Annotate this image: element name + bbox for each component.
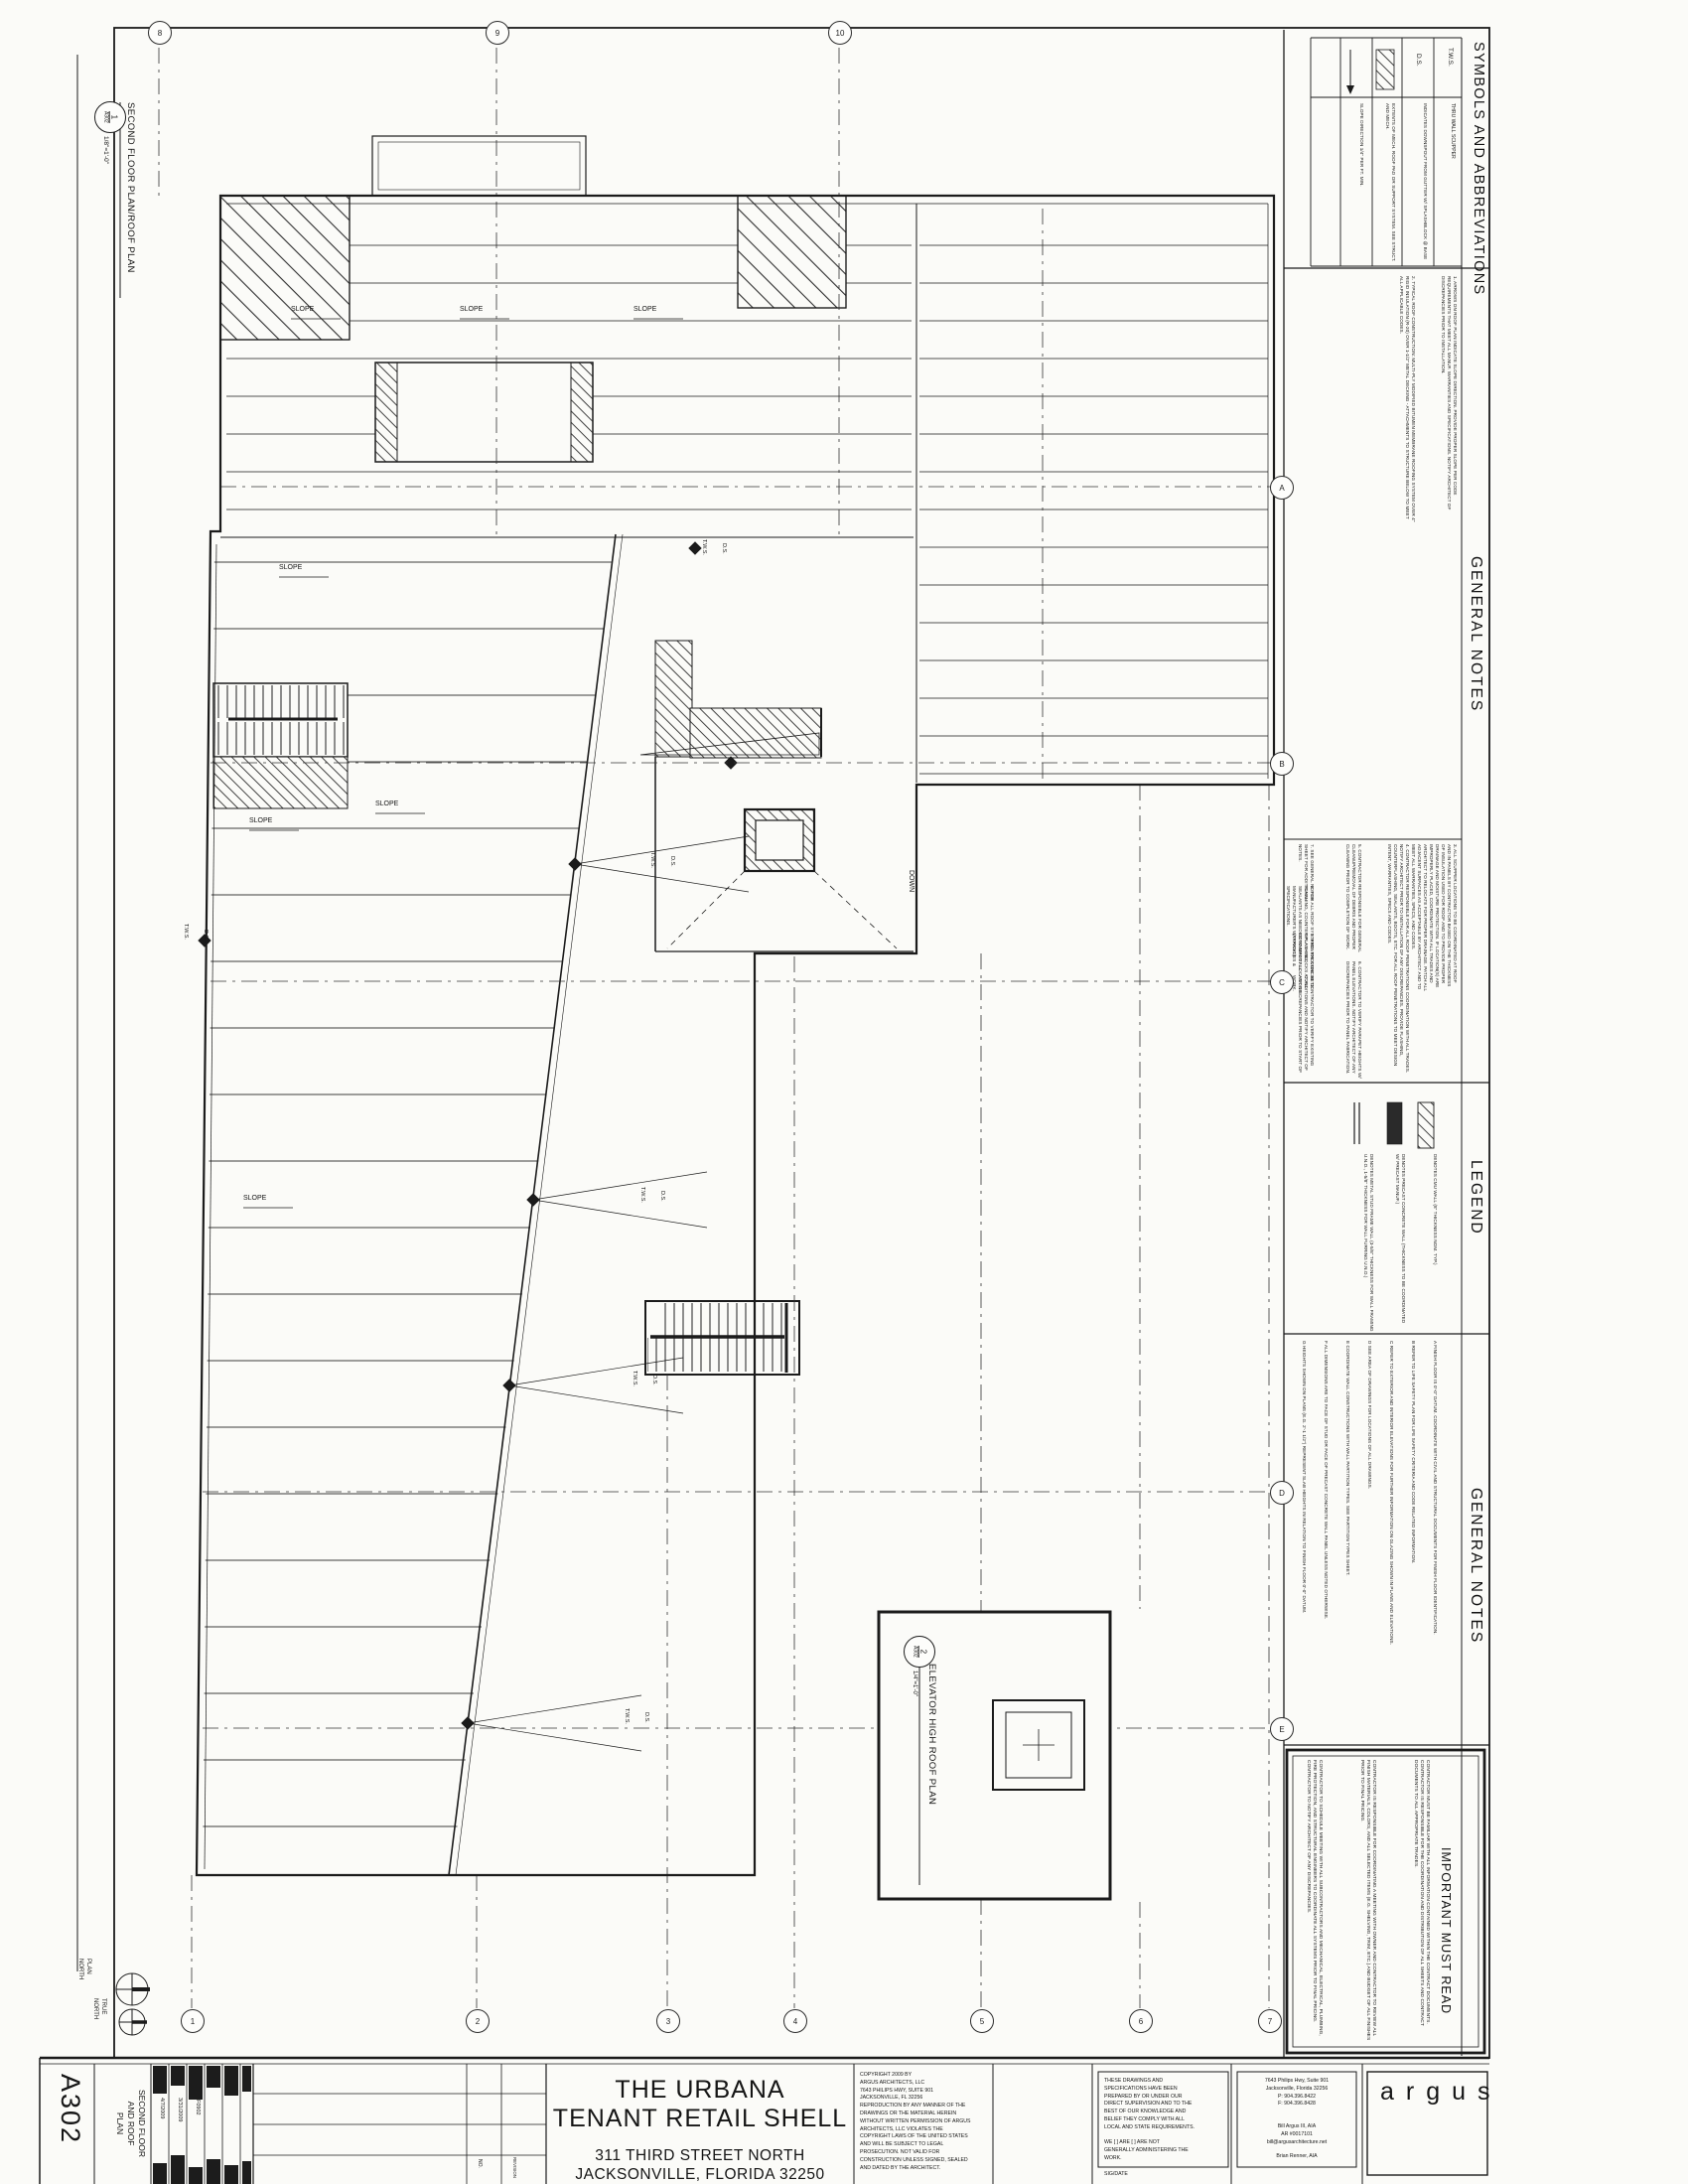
- plan-north-label: PLAN NORTH: [70, 1959, 91, 2000]
- grid-bubble-label: 3: [666, 2017, 670, 2026]
- legend-swatches: [1354, 1102, 1434, 1148]
- project-title-line2: TENANT RETAIL SHELL: [548, 2105, 852, 2133]
- certification-block: THESE DRAWINGS AND SPECIFICATIONS HAVE B…: [1104, 2078, 1223, 2178]
- legend-header: LEGEND: [1464, 1160, 1485, 1264]
- plan-note: D SEE AREA OF DRAWINGS FOR LOCATIONS OF …: [1352, 1341, 1372, 1728]
- ds-label: D.S.: [198, 930, 209, 955]
- grid-bubble-label: 7: [1268, 2017, 1272, 2026]
- detail-number: 2: [918, 1650, 926, 1654]
- tws-label: T.W.S.: [644, 852, 655, 886]
- issue-date: 4/7/2009: [153, 2098, 165, 2145]
- elevator-plan-scale: 1/4"=1'-0": [904, 1671, 917, 1712]
- architect-principal: Bill Argus III, AIA AR #0017101 bill@arg…: [1241, 2123, 1352, 2146]
- sheet-number: A302: [46, 2074, 87, 2178]
- roof-note: 5. CONTRACTOR RESPONSIBLE FOR GENERAL CL…: [1323, 844, 1362, 953]
- grid-bubble: 5: [970, 2009, 994, 2033]
- roof-note: 6. CONTRACTOR TO VERIFY PARAPET HEIGHTS …: [1323, 961, 1362, 1081]
- slope-label: SLOPE: [279, 564, 302, 573]
- plan-note: C REFER TO EXTERIOR AND INTERIOR ELEVATI…: [1374, 1341, 1394, 1728]
- main-plan-scale: 1/8"=1'-0": [95, 136, 109, 178]
- grid-bubble: 1: [181, 2009, 205, 2033]
- grid-bubble-label: D: [1279, 1489, 1285, 1498]
- detail-sheet: A302: [102, 111, 109, 123]
- plan-notes-header: GENERAL NOTES: [1464, 1488, 1485, 1652]
- roof-note: 2. TYPICAL ROOF CONSTRUCTION: MULTI-PLY …: [1378, 276, 1416, 526]
- symbol-abbrev: T.W.S.: [1438, 48, 1454, 91]
- grid-bubble: 2: [466, 2009, 490, 2033]
- grid-bubble-label: A: [1279, 484, 1284, 493]
- architect-associate: Brian Renner, AIA: [1241, 2153, 1352, 2161]
- grid-bubble: 4: [783, 2009, 807, 2033]
- project-address-line2: JACKSONVILLE, FLORIDA 32250: [548, 2165, 852, 2184]
- down-label: DOWN: [902, 870, 915, 906]
- project-title-block: THE URBANA TENANT RETAIL SHELL 311 THIRD…: [548, 2076, 852, 2184]
- grid-bubble: 6: [1129, 2009, 1153, 2033]
- project-title-line1: THE URBANA: [548, 2076, 852, 2105]
- grid-bubble-label: 4: [793, 2017, 797, 2026]
- grid-bubble-label: 6: [1139, 2017, 1143, 2026]
- symbol-desc: INDICATES DOWNSPOUT FROM GUTTER W/ SPLAS…: [1402, 103, 1428, 262]
- important-paragraph: CONTRACTOR MUST BE FAMILIAR WITH ALL INF…: [1384, 1760, 1430, 2046]
- symbol-desc: SLOPE DIRECTION 1/4" PER FT. MIN.: [1338, 103, 1364, 262]
- symbol-desc: EXTENTS OF MECH. ROOF PAD OR SUPPORT SYS…: [1370, 103, 1396, 262]
- grid-bubble: 9: [486, 21, 509, 45]
- slope-label: SLOPE: [243, 1195, 266, 1204]
- ds-label: D.S.: [638, 1712, 649, 1738]
- revision-header: REVISION: [505, 2157, 517, 2184]
- architect-address: 7643 Philips Hwy, Suite 901 Jacksonville…: [1241, 2078, 1352, 2109]
- slope-label: SLOPE: [633, 306, 656, 315]
- slope-label: SLOPE: [460, 306, 483, 315]
- grid-bubble-label: 2: [476, 2017, 480, 2026]
- detail-sheet: A302: [912, 1646, 918, 1658]
- symbols-header: SYMBOLS AND ABBREVIATIONS: [1464, 42, 1487, 268]
- revision-no-header: NO.: [470, 2159, 483, 2181]
- elevator-plan-title: ELEVATOR HIGH ROOF PLAN: [921, 1664, 937, 1884]
- grid-bubble-label: 8: [158, 29, 162, 38]
- tws-label: T.W.S.: [634, 1187, 645, 1221]
- project-address-line1: 311 THIRD STREET NORTH: [548, 2146, 852, 2165]
- important-paragraph: CONTRACTOR IS RESPONSIBLE FOR COORDINATI…: [1331, 1760, 1376, 2046]
- architectural-sheet: 1A302 1/8"=1'-0" SECOND FLOOR PLAN/ROOF …: [0, 0, 1688, 2184]
- true-north-label: TRUE NORTH: [84, 1998, 106, 2038]
- tws-label: T.W.S.: [627, 1371, 637, 1404]
- tws-label: T.W.S.: [178, 924, 189, 957]
- plan-note: E COORDINATE WALL CONSTRUCTIONS WITH WAL…: [1331, 1341, 1350, 1728]
- important-paragraph: CONTRACTOR TO SCHEDULE MEETING WITH ALL …: [1277, 1760, 1323, 2046]
- grid-bubble-label: E: [1279, 1725, 1284, 1734]
- north-arrow-icon: [116, 1973, 150, 2035]
- grid-bubble-label: 5: [980, 2017, 984, 2026]
- project-number: F0902: [189, 2100, 201, 2137]
- grid-bubble-label: B: [1279, 760, 1284, 769]
- slope-label: SLOPE: [291, 306, 314, 315]
- sheet-title: SECOND FLOOR AND ROOF PLAN: [97, 2068, 147, 2179]
- roof-note: 4. CONTRACTOR RESPONSIBLE FOR ALL ROOF P…: [1370, 844, 1410, 1078]
- symbols-glyphs: [1346, 50, 1394, 94]
- tws-label: T.W.S.: [619, 1708, 630, 1742]
- roof-notes-header: GENERAL NOTES: [1464, 556, 1485, 795]
- symbol-abbrev: D.S.: [1408, 54, 1422, 87]
- grid-bubble-label: 1: [191, 2017, 195, 2026]
- detail-number: 1: [109, 115, 117, 119]
- ds-label: D.S.: [716, 543, 727, 569]
- grid-bubble: 3: [656, 2009, 680, 2033]
- roof-note: 1. ARROWS ON ROOF PLAN INDICATE SLOPE DI…: [1420, 276, 1458, 534]
- ds-label: D.S.: [646, 1375, 657, 1400]
- tws-label: T.W.S.: [696, 539, 707, 573]
- legend-item: DENOTES PRECAST CONCRETE WALL (THICKNESS…: [1382, 1154, 1406, 1329]
- roof-note: 3. ALL SCUPPER LOCATIONS TO BE COORDINAT…: [1414, 844, 1458, 993]
- legend-item: DENOTES METAL STUD FRAME WALL (3-5/8" TH…: [1344, 1154, 1374, 1333]
- plan-note: A FINISH FLOOR IS 0'-0" DATUM. COORDINAT…: [1418, 1341, 1438, 1728]
- grid-bubble: 10: [828, 21, 852, 45]
- grid-bubble: 8: [148, 21, 172, 45]
- plan-note: B REFER TO LIFE SAFETY PLAN FOR LIFE SAF…: [1396, 1341, 1416, 1728]
- core-canopy: [640, 641, 914, 951]
- roof-note: 10. CONTRACTOR TO VERIFY EXISTING CONDIT…: [1275, 975, 1315, 1075]
- grid-bubble: A: [1270, 476, 1294, 500]
- ds-label: D.S.: [654, 1191, 665, 1217]
- slope-label: SLOPE: [375, 801, 398, 809]
- main-plan-title: SECOND FLOOR PLAN/ROOF PLAN: [120, 102, 136, 301]
- plan-note: G HEIGHTS SHOWN ON PLANS (E.G. 2'-1 1/2"…: [1287, 1341, 1307, 1728]
- ds-label: D.S.: [664, 856, 675, 882]
- grid-bubble-label: 9: [495, 29, 499, 38]
- important-header: IMPORTANT MUST READ: [1436, 1847, 1454, 2058]
- elevator-shaft: [745, 809, 814, 871]
- titleblock-fill-cells: [153, 2066, 251, 2184]
- grid-bubble: B: [1270, 752, 1294, 776]
- slope-label: SLOPE: [249, 817, 272, 826]
- plan-note: F ALL DIMENSIONS ARE TO FACE OF STUD OR …: [1309, 1341, 1329, 1728]
- copyright-block: COPYRIGHT 2009 BY ARGUS ARCHITECTS, LLC …: [860, 2072, 989, 2172]
- issue-date: 3/31/2009: [171, 2098, 183, 2149]
- argus-logo: argus: [1380, 2078, 1502, 2107]
- grid-bubble-label: 10: [836, 29, 845, 38]
- symbol-desc: THRU WALL SCUPPER: [1436, 103, 1456, 260]
- stair-lower: [645, 1301, 799, 1375]
- legend-item: DENOTES CMU WALL (8" THICKNESS NOM. TYP.…: [1416, 1154, 1438, 1325]
- stair-upper: [213, 683, 348, 808]
